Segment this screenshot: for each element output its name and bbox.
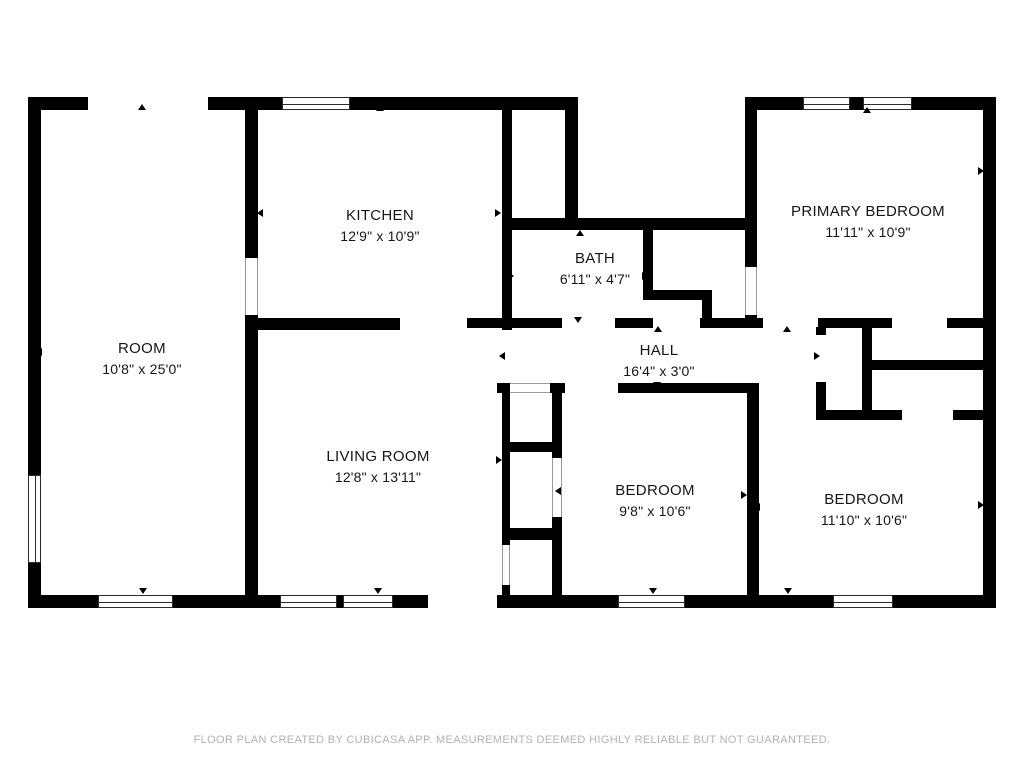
triangle-marker (642, 272, 648, 280)
wall-segment (867, 360, 983, 370)
triangle-marker (863, 107, 871, 113)
wall-segment (502, 218, 757, 230)
wall-segment (850, 97, 863, 110)
triangle-marker (555, 487, 561, 495)
wall-segment (350, 97, 578, 110)
window-pane-line (283, 104, 349, 105)
wall-segment (173, 595, 280, 608)
room-dimensions: 12'8" x 13'11" (326, 467, 429, 487)
triangle-marker (574, 317, 582, 323)
triangle-marker (499, 352, 505, 360)
room-name: BATH (560, 248, 630, 269)
triangle-marker (741, 491, 747, 499)
wall-segment (643, 290, 712, 300)
window (28, 475, 41, 563)
wall-segment (817, 410, 902, 420)
wall-segment (507, 442, 557, 452)
triangle-marker (257, 209, 263, 217)
door-opening (745, 267, 757, 315)
wall-segment (983, 97, 996, 608)
room-name: HALL (623, 340, 694, 361)
wall-segment (615, 318, 653, 328)
room-dimensions: 16'4" x 3'0" (623, 361, 694, 381)
window-pane-line (834, 602, 892, 603)
triangle-marker (138, 104, 146, 110)
wall-segment (618, 383, 759, 393)
window (803, 97, 850, 110)
wall-segment (953, 410, 983, 420)
wall-segment (393, 595, 428, 608)
window-pane-line (804, 104, 849, 105)
triangle-marker (374, 588, 382, 594)
window-pane-line (864, 104, 911, 105)
window (618, 595, 685, 608)
wall-segment (818, 318, 892, 328)
triangle-marker (783, 326, 791, 332)
triangle-marker (495, 209, 501, 217)
triangle-marker (653, 382, 661, 388)
window-pane-line (344, 602, 392, 603)
wall-segment (747, 383, 759, 595)
window (833, 595, 893, 608)
triangle-marker (508, 272, 514, 280)
room-dimensions: 6'11" x 4'7" (560, 269, 630, 289)
wall-segment (643, 230, 653, 292)
wall-segment (502, 385, 510, 545)
window-pane-line (619, 602, 684, 603)
room-name: KITCHEN (340, 205, 419, 226)
wall-segment (745, 97, 757, 267)
room-label-living-room: LIVING ROOM12'8" x 13'11" (326, 446, 429, 487)
room-dimensions: 9'8" x 10'6" (615, 501, 695, 521)
triangle-marker (376, 105, 384, 111)
room-label-hall: HALL16'4" x 3'0" (623, 340, 694, 381)
wall-segment (893, 595, 996, 608)
window (98, 595, 173, 608)
triangle-marker (576, 230, 584, 236)
triangle-marker (784, 588, 792, 594)
wall-segment (507, 528, 557, 540)
room-label-room: ROOM10'8" x 25'0" (102, 338, 181, 379)
wall-segment (245, 318, 400, 330)
room-label-bath: BATH6'11" x 4'7" (560, 248, 630, 289)
wall-segment (208, 97, 282, 110)
triangle-marker (754, 503, 760, 511)
room-name: LIVING ROOM (326, 446, 429, 467)
room-name: BEDROOM (821, 489, 907, 510)
room-dimensions: 11'11" x 10'9" (791, 222, 945, 242)
room-dimensions: 11'10" x 10'6" (821, 510, 907, 530)
floor-plan-page: ROOM10'8" x 25'0"KITCHEN12'9" x 10'9"BAT… (0, 0, 1024, 768)
door-opening (245, 258, 258, 315)
room-name: BEDROOM (615, 480, 695, 501)
window (343, 595, 393, 608)
door-opening (510, 383, 550, 393)
wall-segment (685, 595, 833, 608)
triangle-marker (139, 588, 147, 594)
room-label-bedroom-right: BEDROOM11'10" x 10'6" (821, 489, 907, 530)
wall-segment (565, 110, 578, 222)
wall-segment (816, 327, 826, 335)
wall-segment (502, 585, 510, 595)
room-name: ROOM (102, 338, 181, 359)
wall-segment (28, 97, 41, 475)
triangle-marker (496, 456, 502, 464)
door-opening (502, 545, 510, 585)
triangle-marker (36, 348, 42, 356)
window (280, 595, 337, 608)
room-label-primary-bedroom: PRIMARY BEDROOM11'11" x 10'9" (791, 201, 945, 242)
window-pane-line (99, 602, 172, 603)
window-pane-line (281, 602, 336, 603)
room-label-bedroom-middle: BEDROOM9'8" x 10'6" (615, 480, 695, 521)
wall-segment (245, 110, 258, 258)
room-label-kitchen: KITCHEN12'9" x 10'9" (340, 205, 419, 246)
wall-segment (467, 318, 562, 328)
triangle-marker (978, 167, 984, 175)
triangle-marker (654, 326, 662, 332)
window (282, 97, 350, 110)
triangle-marker (749, 166, 755, 174)
triangle-marker (978, 501, 984, 509)
room-dimensions: 12'9" x 10'9" (340, 226, 419, 246)
wall-segment (700, 318, 763, 328)
wall-segment (245, 315, 258, 595)
floor-plan-canvas: ROOM10'8" x 25'0"KITCHEN12'9" x 10'9"BAT… (0, 0, 1024, 768)
wall-segment (497, 595, 618, 608)
triangle-marker (814, 352, 820, 360)
room-name: PRIMARY BEDROOM (791, 201, 945, 222)
wall-segment (947, 318, 983, 328)
wall-segment (28, 595, 98, 608)
footer-disclaimer: FLOOR PLAN CREATED BY CUBICASA APP. MEAS… (0, 734, 1024, 746)
room-dimensions: 10'8" x 25'0" (102, 359, 181, 379)
window-pane-line (35, 476, 36, 562)
triangle-marker (649, 588, 657, 594)
